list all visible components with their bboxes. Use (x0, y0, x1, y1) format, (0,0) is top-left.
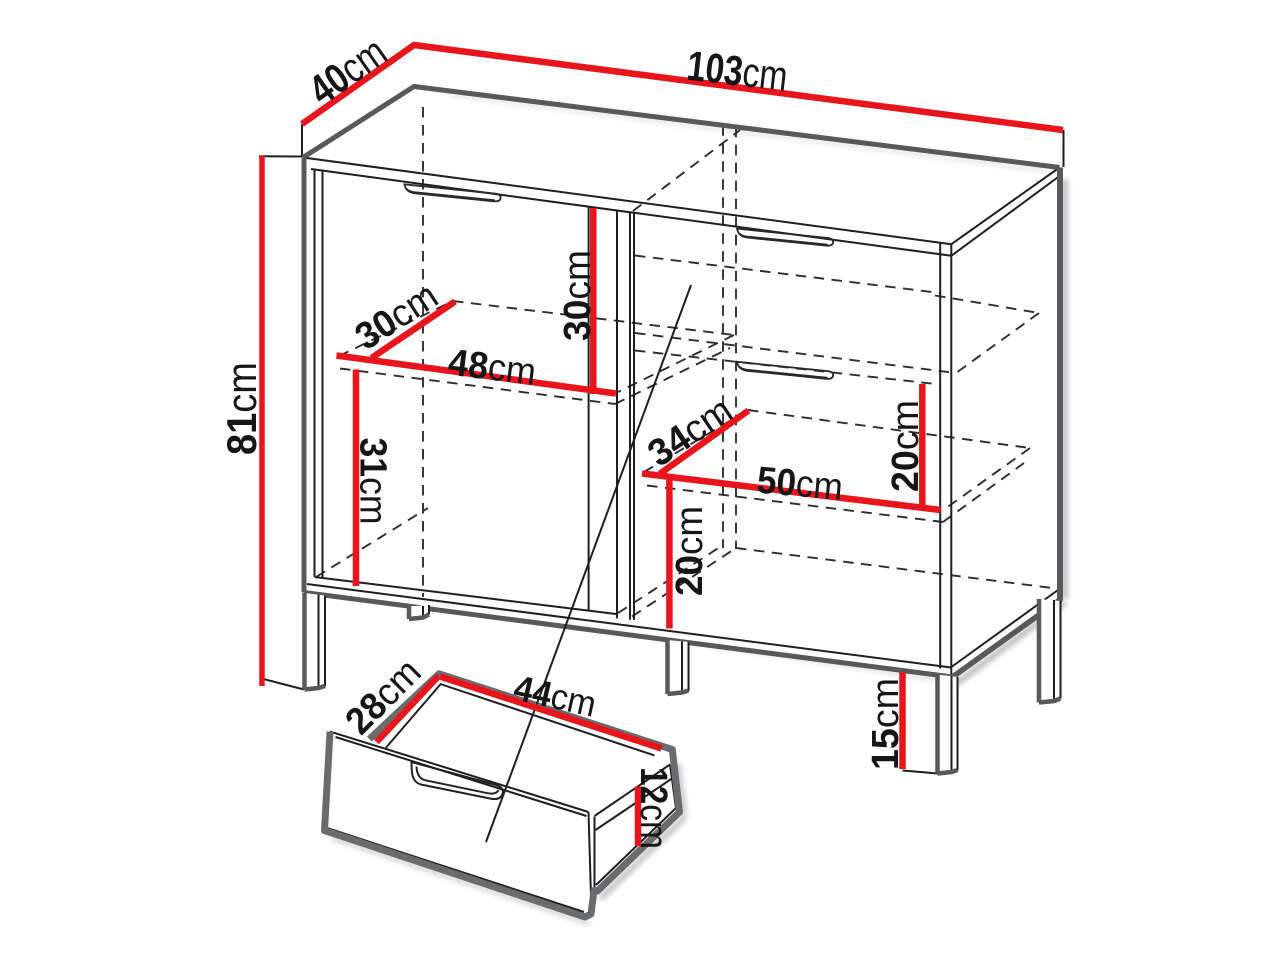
svg-text:20cm: 20cm (885, 400, 927, 492)
svg-text:81cm: 81cm (218, 362, 265, 455)
svg-text:30cm: 30cm (557, 250, 599, 341)
svg-text:50cm: 50cm (755, 460, 844, 509)
svg-text:12cm: 12cm (632, 767, 674, 849)
svg-text:31cm: 31cm (352, 438, 394, 525)
svg-text:15cm: 15cm (865, 678, 907, 770)
svg-text:20cm: 20cm (669, 506, 711, 596)
